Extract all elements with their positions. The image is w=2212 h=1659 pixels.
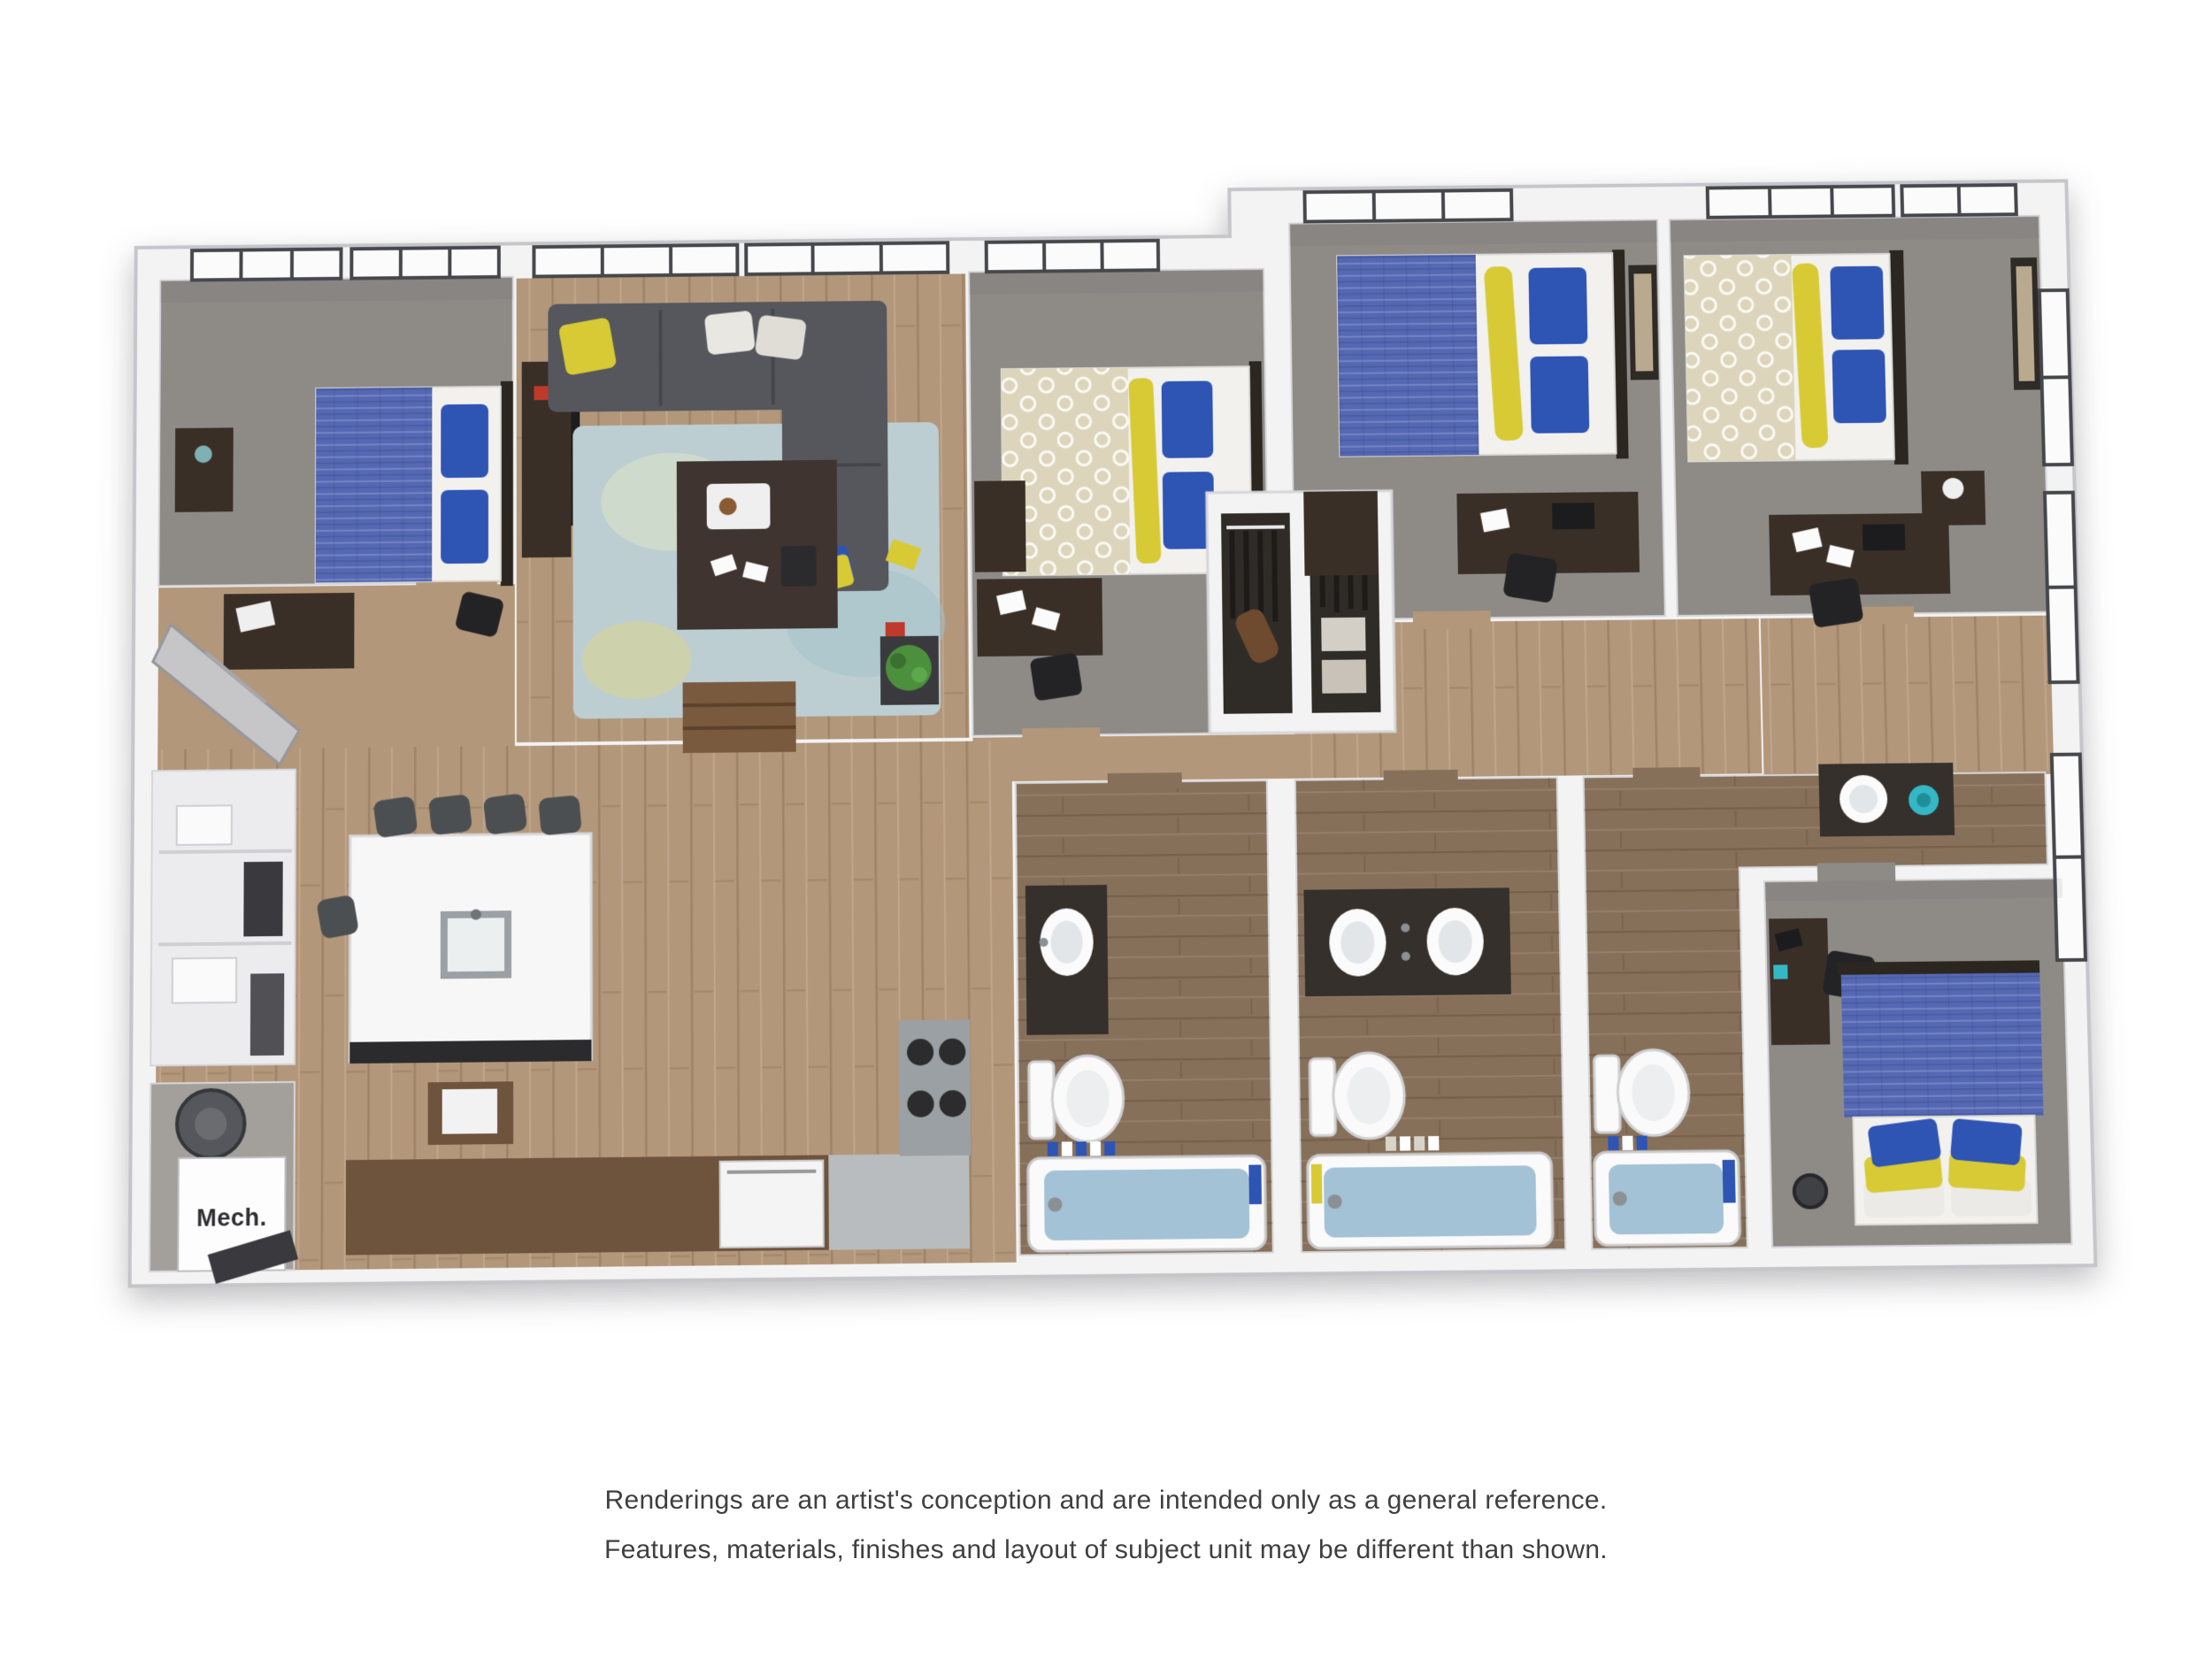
sofa-pillow-white <box>704 311 756 356</box>
toilet <box>1310 1053 1405 1140</box>
dresser <box>1303 491 1379 576</box>
towel-yellow <box>1311 1164 1323 1204</box>
blanket-texture <box>316 388 433 583</box>
desk-chair <box>1502 552 1558 603</box>
decor <box>442 1089 497 1134</box>
towel-blue <box>1723 1160 1736 1203</box>
disclaimer: Renderings are an artist's conception an… <box>0 1476 2212 1575</box>
bed-headboard <box>501 381 513 586</box>
bathroom-3-door-opening <box>1632 767 1700 784</box>
blanket-texture <box>1841 972 2044 1118</box>
window-right-wall-lower <box>2052 755 2085 961</box>
speaker <box>1793 1175 1826 1208</box>
wall-art <box>1628 265 1658 380</box>
towel-rack <box>1608 1136 1647 1151</box>
dresser <box>974 480 1026 572</box>
floor-plan-stage: Mech. <box>0 0 2212 1659</box>
mech-label: Mech. <box>196 1203 267 1231</box>
bed-pillow-blue <box>1530 356 1589 433</box>
vanity <box>1818 763 1955 837</box>
storage-box <box>177 805 232 845</box>
vanity <box>1025 885 1109 1035</box>
disclaimer-line-2: Features, materials, finishes and layout… <box>0 1525 2212 1575</box>
toilet <box>1029 1056 1124 1142</box>
bar-stool <box>316 895 359 940</box>
sofa-pillow-yellow <box>558 317 618 376</box>
desk-chair <box>1029 652 1082 701</box>
bed-pillow-blue <box>1830 266 1884 340</box>
bed-pillow-blue <box>441 489 488 564</box>
bedroom-3-door-opening <box>1413 611 1491 629</box>
bathroom-2-door-opening <box>1384 770 1458 787</box>
window-right-wall-upper <box>2039 290 2072 465</box>
bed-pillow-blue <box>1832 349 1886 423</box>
closet-box <box>1322 659 1366 693</box>
window-bedroom-4 <box>1708 185 2016 218</box>
blanket-texture <box>1337 255 1479 457</box>
closet-box <box>1321 618 1365 651</box>
shelf-items <box>250 973 284 1056</box>
bar-stool <box>428 794 472 835</box>
bed-pillow-blue <box>1528 267 1587 344</box>
stove <box>899 1019 972 1156</box>
disclaimer-line-1: Renderings are an artist's conception an… <box>0 1476 2212 1525</box>
floor-plan-rendering: Mech. <box>0 0 2212 1659</box>
bed-pillow-blue <box>1950 1118 2023 1166</box>
bed-pillow-blue <box>441 404 488 478</box>
decor <box>886 622 905 636</box>
lamp-teal <box>1773 964 1787 979</box>
bed-headboard <box>1837 960 2039 974</box>
bedroom-3 <box>1300 250 1663 606</box>
bar-stool <box>373 795 418 838</box>
bathroom-1-door-opening <box>1108 772 1182 789</box>
towel-blue <box>1248 1164 1262 1204</box>
sofa-pillow-white <box>755 315 807 361</box>
living-room <box>522 300 947 755</box>
storage-box <box>173 958 236 1003</box>
nightstand <box>175 427 234 512</box>
bar-stool <box>483 793 528 835</box>
toilet <box>1594 1049 1689 1136</box>
page: Mech. <box>0 0 2212 1659</box>
window-bedroom-2 <box>987 241 1159 272</box>
wood-texture <box>1293 616 2054 779</box>
wall-art <box>2010 257 2040 390</box>
bedroom-2-door-opening <box>1022 727 1100 746</box>
bench <box>683 681 796 753</box>
bar-stool <box>538 795 582 835</box>
desk-chair <box>1808 578 1863 628</box>
bathtub <box>1594 1151 1740 1246</box>
towel-rack <box>1048 1141 1116 1156</box>
shelf-items <box>243 862 282 937</box>
window-bedroom-3 <box>1304 190 1511 222</box>
double-vanity <box>1303 887 1510 996</box>
bed-pillow-blue <box>1162 380 1214 457</box>
kitchen-island <box>349 833 591 1064</box>
window-right-wall-middle <box>2045 493 2078 683</box>
bathtub <box>1308 1153 1554 1248</box>
blanket-texture <box>1685 255 1796 462</box>
bathtub <box>1028 1156 1266 1251</box>
coffee-table <box>677 460 838 630</box>
